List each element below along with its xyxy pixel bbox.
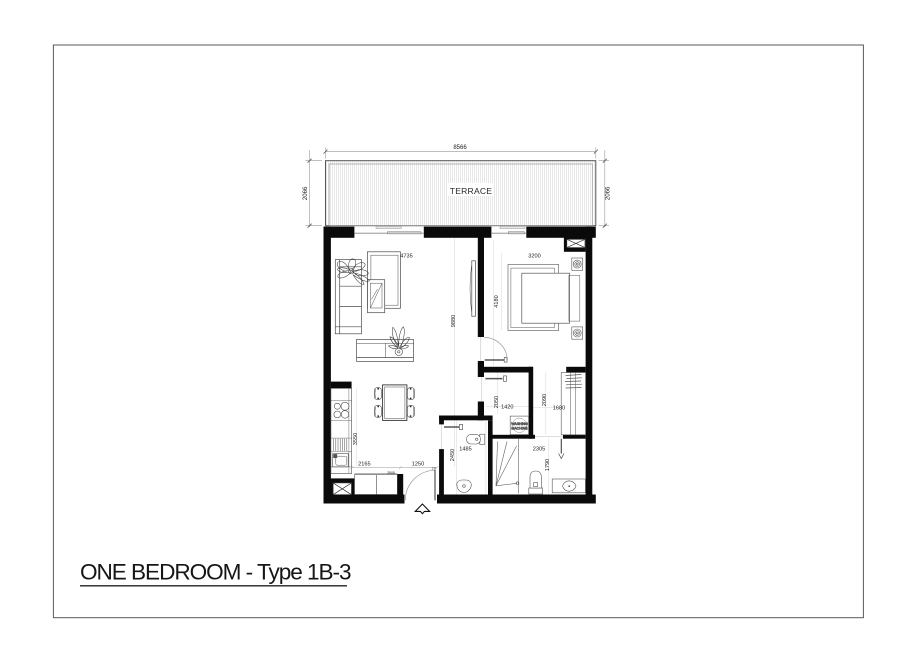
- svg-text:2905: 2905: [387, 471, 395, 475]
- svg-text:2050: 2050: [494, 396, 500, 408]
- svg-text:1420: 1420: [501, 405, 513, 411]
- svg-text:3550: 3550: [353, 433, 359, 445]
- svg-text:1790: 1790: [545, 459, 551, 471]
- svg-text:2450: 2450: [450, 449, 456, 461]
- svg-text:4180: 4180: [494, 295, 500, 307]
- svg-text:2165: 2165: [358, 462, 370, 468]
- svg-text:9880: 9880: [451, 315, 457, 327]
- svg-text:1680: 1680: [553, 406, 565, 412]
- svg-text:3200: 3200: [528, 254, 540, 260]
- svg-text:ONE BEDROOM - Type 1B-3: ONE BEDROOM - Type 1B-3: [80, 559, 351, 584]
- svg-text:1485: 1485: [459, 446, 471, 452]
- svg-text:8566: 8566: [453, 145, 467, 151]
- svg-text:TERRACE: TERRACE: [450, 186, 493, 196]
- svg-text:WASHING: WASHING: [511, 422, 528, 426]
- svg-text:29: 29: [432, 466, 436, 470]
- svg-text:2305: 2305: [533, 447, 545, 453]
- svg-text:2090: 2090: [542, 394, 548, 406]
- svg-text:2066: 2066: [303, 186, 309, 200]
- svg-text:MACHINE: MACHINE: [511, 426, 528, 430]
- svg-text:1250: 1250: [412, 462, 424, 468]
- svg-text:2066: 2066: [606, 186, 612, 200]
- svg-text:4735: 4735: [400, 253, 412, 259]
